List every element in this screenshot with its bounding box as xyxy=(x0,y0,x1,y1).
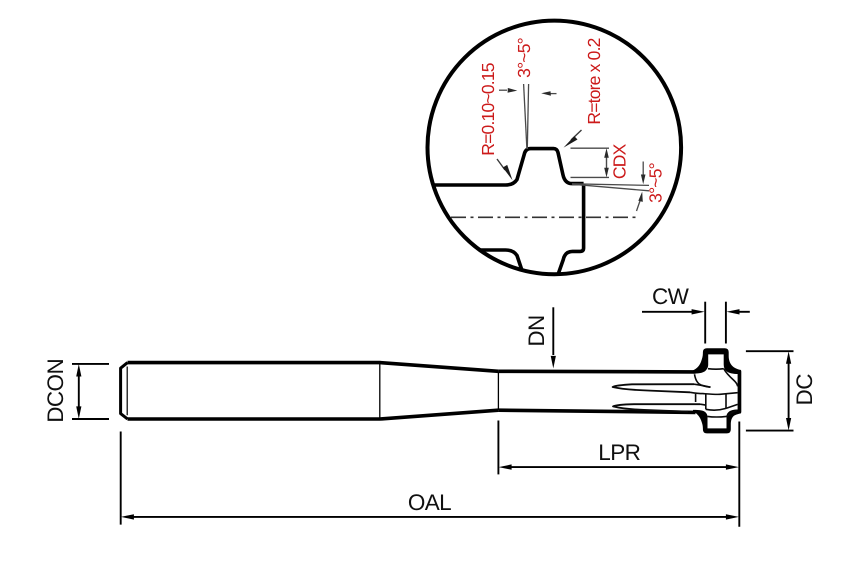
svg-text:DN: DN xyxy=(524,315,549,346)
svg-text:CDX: CDX xyxy=(609,143,629,179)
svg-text:R=0.10~0.15: R=0.10~0.15 xyxy=(478,63,498,155)
svg-text:DCON: DCON xyxy=(43,359,68,423)
svg-text:3°~5°: 3°~5° xyxy=(645,163,665,203)
svg-text:OAL: OAL xyxy=(408,490,451,515)
svg-text:LPR: LPR xyxy=(598,440,640,465)
svg-text:DC: DC xyxy=(792,374,817,406)
svg-text:3°~5°: 3°~5° xyxy=(514,38,534,78)
svg-text:CW: CW xyxy=(652,284,690,309)
svg-text:R=tore x 0.2: R=tore x 0.2 xyxy=(584,38,604,124)
